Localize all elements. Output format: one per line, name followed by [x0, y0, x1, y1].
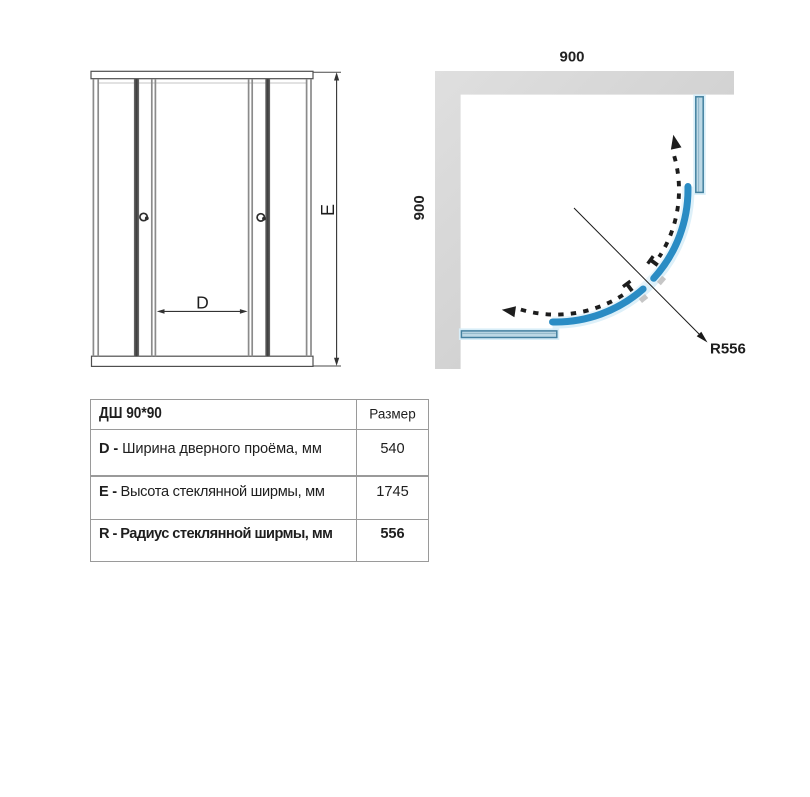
svg-text:900: 900	[411, 195, 428, 220]
svg-text:E: E	[318, 204, 338, 216]
svg-text:D: D	[196, 293, 209, 313]
svg-text:R556: R556	[710, 341, 746, 358]
svg-text:900: 900	[559, 49, 584, 66]
